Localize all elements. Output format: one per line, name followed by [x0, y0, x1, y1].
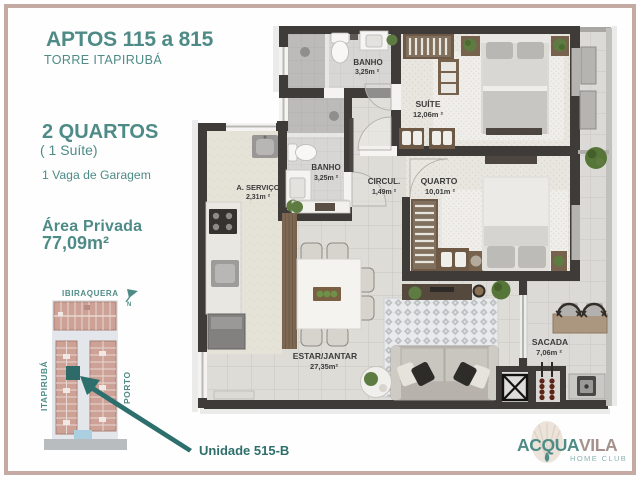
svg-text:A. SERVIÇO: A. SERVIÇO — [236, 183, 279, 192]
svg-text:3,25m ²: 3,25m ² — [355, 69, 380, 76]
svg-text:SACADA: SACADA — [532, 337, 568, 347]
svg-text:PORTO: PORTO — [122, 371, 132, 404]
svg-text:SUÍTE: SUÍTE — [415, 99, 440, 109]
svg-text:N: N — [127, 302, 131, 308]
svg-text:HOME CLUB: HOME CLUB — [570, 454, 627, 463]
svg-text:ITAPIRUBÁ: ITAPIRUBÁ — [39, 361, 49, 411]
svg-text:QUARTO: QUARTO — [421, 176, 458, 186]
svg-text:10,01m ²: 10,01m ² — [425, 187, 456, 196]
svg-text:BANHO: BANHO — [353, 58, 382, 67]
svg-text:IBIRAQUERA: IBIRAQUERA — [62, 289, 119, 298]
svg-text:2,31m ²: 2,31m ² — [246, 194, 271, 201]
svg-text:7,06m ²: 7,06m ² — [536, 348, 562, 357]
svg-text:1,49m ²: 1,49m ² — [372, 189, 397, 196]
svg-text:ACQUA: ACQUA — [517, 435, 580, 455]
svg-text:CIRCUL.: CIRCUL. — [368, 177, 400, 186]
svg-text:27,35m²: 27,35m² — [310, 362, 338, 371]
svg-text:3,25m ²: 3,25m ² — [314, 175, 339, 182]
svg-text:VILA: VILA — [579, 435, 618, 455]
svg-text:BANHO: BANHO — [311, 163, 340, 172]
svg-text:12,06m ²: 12,06m ² — [413, 110, 444, 119]
svg-text:ESTAR/JANTAR: ESTAR/JANTAR — [293, 351, 357, 361]
